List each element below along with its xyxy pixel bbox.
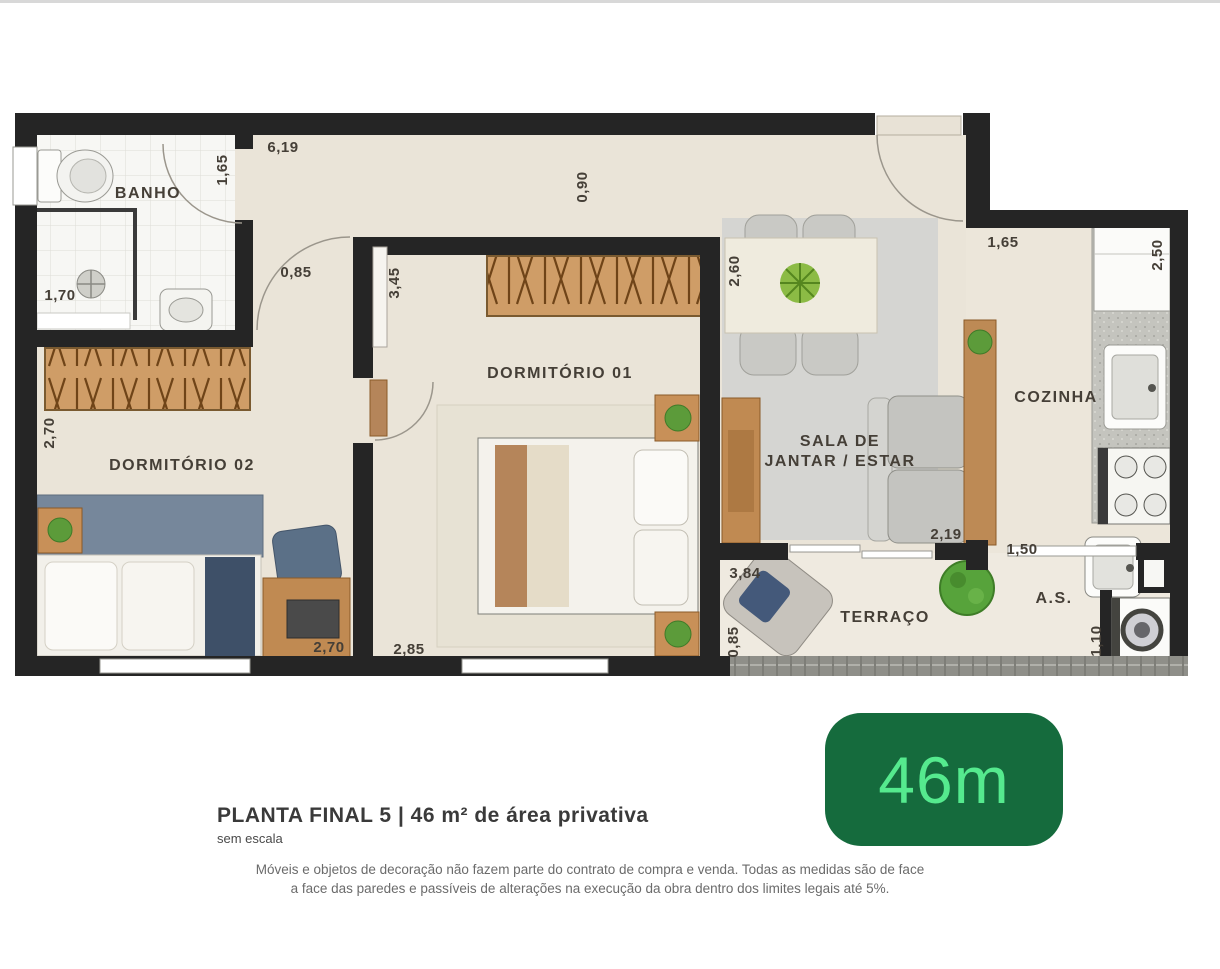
- room-label-dormitorio01: DORMITÓRIO 01: [487, 363, 633, 382]
- dorm01-right-wall: [700, 255, 720, 656]
- dorm02-window: [100, 659, 250, 673]
- dim-cozinha-depth: 2,50: [1149, 239, 1166, 270]
- dim-terraco-depth: 0,85: [725, 626, 742, 657]
- dim-as-opening: 1,50: [1006, 541, 1037, 558]
- desk-object-dorm02: [287, 600, 339, 638]
- hall-wall-upper: [353, 237, 373, 378]
- dim-dorm02-width: 2,70: [313, 639, 344, 656]
- dorm01-window: [462, 659, 608, 673]
- plant-dorm01-top-icon: [665, 405, 691, 431]
- right-wall: [1170, 228, 1188, 676]
- terrace-as-stub-wall: [966, 540, 988, 570]
- room-label-sala-line1: SALA DE: [800, 433, 880, 450]
- sideboard-detail: [728, 430, 754, 512]
- bed-dorm01-pillow-bottom: [634, 530, 688, 605]
- room-label-sala-line2: JANTAR / ESTAR: [764, 453, 915, 470]
- room-label-dormitorio02: DORMITÓRIO 02: [109, 455, 255, 474]
- washing-machine-drum: [1134, 622, 1150, 638]
- bathroom-sink-basin: [169, 298, 203, 322]
- entry-door-leaf: [877, 116, 961, 135]
- room-label-terraco: TERRAÇO: [840, 609, 930, 626]
- area-badge: 46m: [825, 713, 1063, 846]
- terrace-slider-pane-2: [862, 551, 932, 558]
- dim-top-width: 6,19: [267, 139, 298, 156]
- kitchen-faucet-icon: [1148, 384, 1156, 392]
- room-label-cozinha: COZINHA: [1014, 389, 1097, 406]
- top-wall: [15, 113, 875, 135]
- shower-ledge: [37, 313, 130, 329]
- bed-dorm02-pillow-right: [122, 562, 194, 650]
- floor-plan-page: BANHO DORMITÓRIO 02 DORMITÓRIO 01 SALA D…: [0, 0, 1220, 969]
- dorm01-top-wall: [353, 237, 720, 255]
- shower-partition-horizontal: [37, 208, 137, 212]
- terrace-railing: [730, 656, 1188, 676]
- bed-dorm02-blanket: [205, 557, 255, 656]
- burner-4: [1144, 494, 1166, 516]
- plant-dorm01-bottom-icon: [665, 621, 691, 647]
- dim-dining-width: 2,60: [726, 255, 743, 286]
- dim-as-width: 1,10: [1088, 625, 1105, 656]
- bathroom-window: [13, 147, 37, 205]
- terrace-plant-detail-1: [950, 572, 966, 588]
- terrace-plant-detail-2: [968, 588, 984, 604]
- burner-3: [1115, 494, 1137, 516]
- plan-title: PLANTA FINAL 5 | 46 m² de área privativa: [217, 804, 649, 828]
- bed-dorm01-pillow-top: [634, 450, 688, 525]
- dim-banho-width: 1,70: [44, 287, 75, 304]
- step-wall: [966, 113, 990, 213]
- dim-cozinha-top: 1,65: [987, 234, 1018, 251]
- dim-terraco-width: 3,84: [729, 565, 760, 582]
- disclaimer-text: Móveis e objetos de decoração não fazem …: [120, 861, 1060, 899]
- washing-machine-panel: [1112, 598, 1120, 662]
- room-label-area-servico: A.S.: [1035, 590, 1072, 607]
- disclaimer-line-2: a face das paredes e passíveis de altera…: [120, 880, 1060, 899]
- dim-dorm01-width: 2,85: [393, 641, 424, 658]
- wardrobe-dorm01: [487, 256, 703, 316]
- dim-dorm01-depth: 3,45: [386, 267, 403, 298]
- wardrobe-dorm02: [45, 348, 250, 410]
- toilet-seat: [70, 159, 106, 193]
- plant-dorm02-icon: [48, 518, 72, 542]
- dim-sala-width: 2,19: [930, 526, 961, 543]
- sala-terrace-wall-left: [720, 543, 788, 560]
- bed-dorm01-runner: [527, 445, 569, 607]
- rack-plant-icon: [968, 330, 992, 354]
- bathroom-wall-stub: [235, 135, 253, 149]
- stove-panel: [1098, 448, 1108, 524]
- dim-hall-width: 0,85: [280, 264, 311, 281]
- disclaimer-line-1: Móveis e objetos de decoração não fazem …: [120, 861, 1060, 880]
- dorm-divider-wall: [353, 443, 373, 656]
- burner-2: [1144, 456, 1166, 478]
- room-label-banho: BANHO: [115, 185, 181, 202]
- laundry-faucet-icon: [1126, 564, 1134, 572]
- burner-1: [1115, 456, 1137, 478]
- dim-dorm02-depth: 2,70: [41, 417, 58, 448]
- bathroom-bottom-wall: [37, 330, 253, 347]
- dorm02-door-leaf: [373, 247, 387, 347]
- terrace-slider-pane-1: [790, 545, 860, 552]
- scale-note: sem escala: [217, 831, 283, 846]
- dorm01-door-leaf: [370, 380, 387, 436]
- bed-dorm01-throw: [495, 445, 527, 607]
- kitchen-top-wall: [966, 210, 1188, 228]
- dim-entry-width: 0,90: [574, 171, 591, 202]
- as-wall-segment: [1136, 543, 1170, 560]
- table-plant-leaves: [780, 263, 820, 303]
- bathroom-right-wall: [235, 220, 253, 347]
- area-badge-label: 46m: [878, 742, 1009, 818]
- dim-banho-depth: 1,65: [214, 154, 231, 185]
- shower-partition-vertical: [133, 208, 137, 320]
- bed-dorm02-pillow-left: [45, 562, 117, 650]
